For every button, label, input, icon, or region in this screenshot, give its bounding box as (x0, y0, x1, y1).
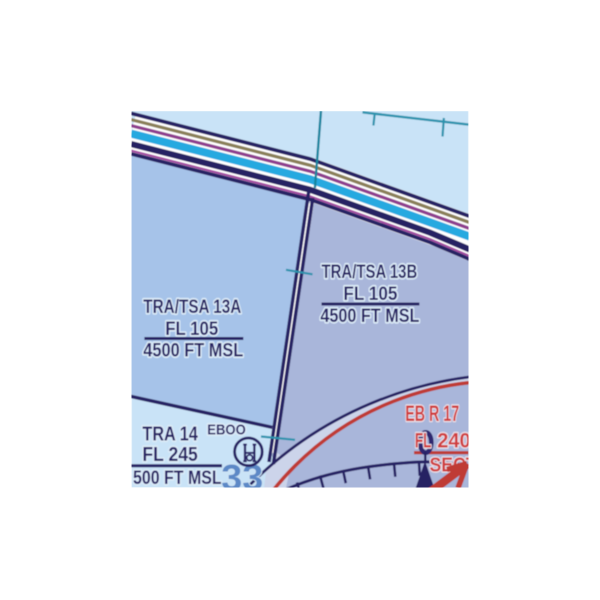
svg-text:FL 105: FL 105 (343, 283, 397, 305)
svg-text:240: 240 (437, 428, 470, 452)
svg-text:TRA 14: TRA 14 (142, 423, 198, 445)
svg-text:4500 FT MSL: 4500 FT MSL (320, 305, 419, 327)
svg-text:FL: FL (415, 428, 432, 452)
svg-text:500 FT MSL: 500 FT MSL (133, 468, 222, 489)
svg-text:TRA/TSA 13A: TRA/TSA 13A (143, 296, 241, 318)
svg-text:TRA/TSA 13B: TRA/TSA 13B (322, 261, 418, 283)
svg-text:FL 245: FL 245 (142, 444, 197, 466)
svg-text:4500 FT MSL: 4500 FT MSL (143, 340, 243, 362)
svg-text:EBOO: EBOO (207, 421, 246, 438)
svg-text:EB R 17: EB R 17 (405, 401, 459, 426)
svg-text:FL 105: FL 105 (165, 318, 218, 340)
